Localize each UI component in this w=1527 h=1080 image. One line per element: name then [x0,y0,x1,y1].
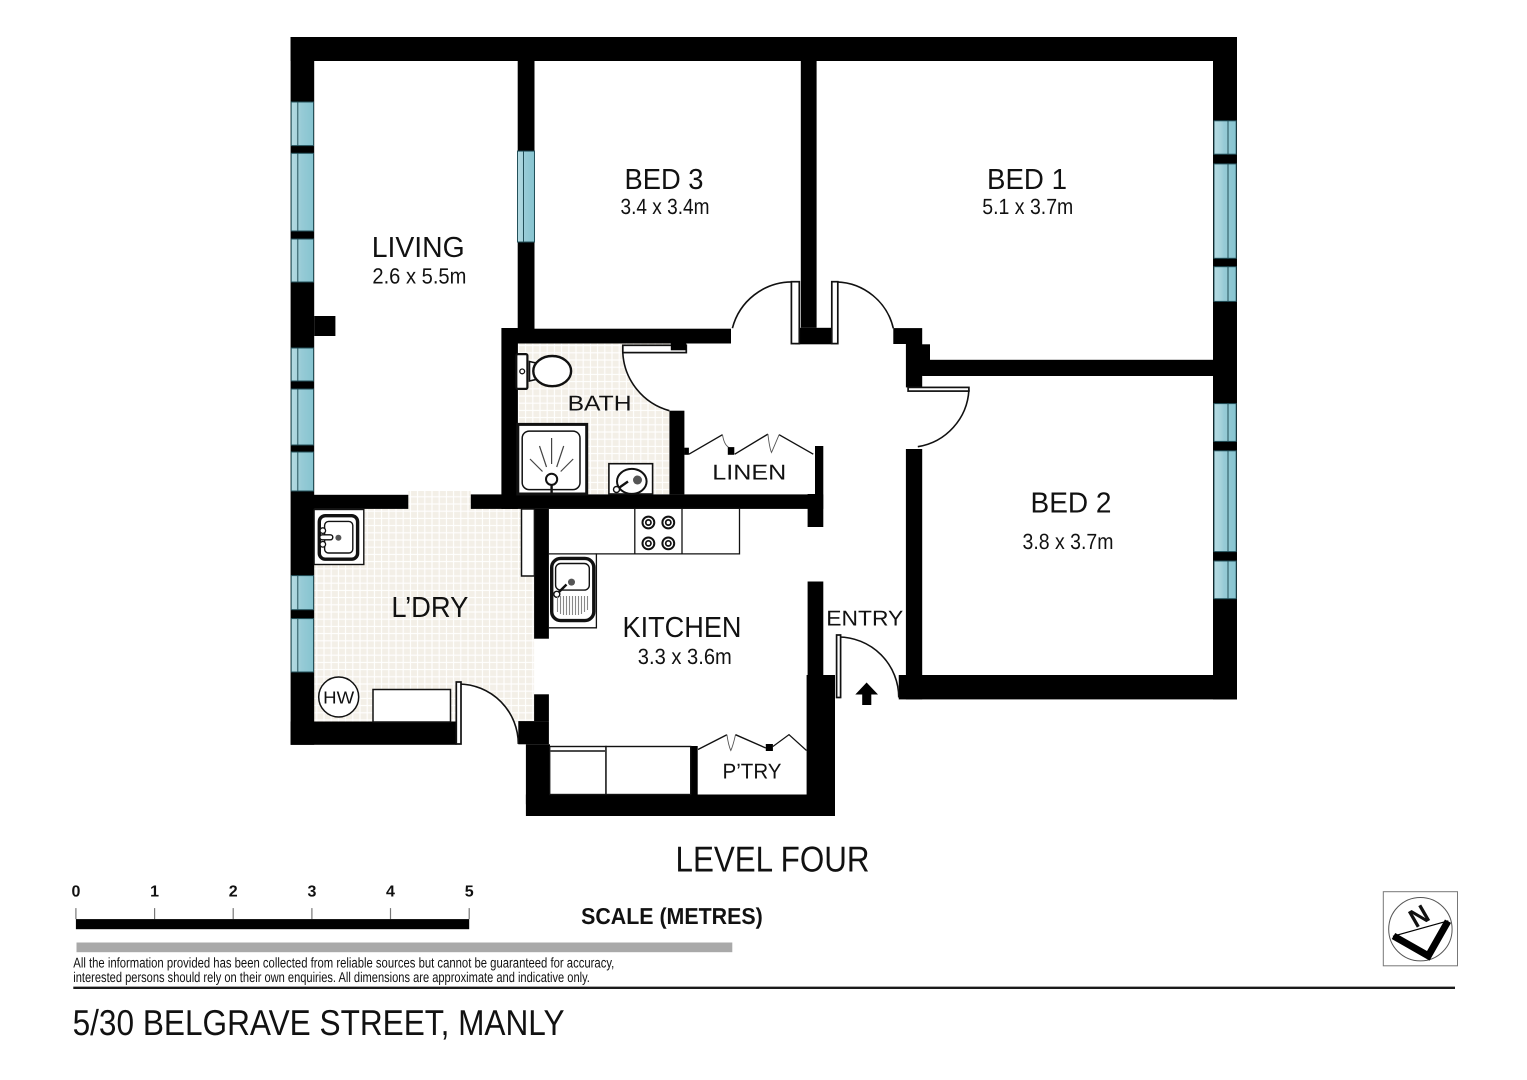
svg-text:L’DRY: L’DRY [391,592,468,624]
svg-text:KITCHEN: KITCHEN [623,612,742,644]
svg-text:0: 0 [71,884,80,901]
svg-text:1: 1 [150,884,159,901]
svg-text:BED 3: BED 3 [625,164,704,196]
svg-text:HW: HW [323,688,355,708]
svg-text:2.6 x 5.5m: 2.6 x 5.5m [372,263,466,288]
svg-text:LIVING: LIVING [372,232,465,264]
svg-text:4: 4 [386,884,395,901]
svg-text:BED 2: BED 2 [1031,488,1112,520]
svg-text:LEVEL FOUR: LEVEL FOUR [676,838,870,879]
svg-text:2: 2 [229,884,238,901]
svg-text:BATH: BATH [568,392,632,416]
svg-text:BED 1: BED 1 [987,164,1067,196]
svg-text:ENTRY: ENTRY [826,607,903,631]
svg-text:SCALE (METRES): SCALE (METRES) [581,903,763,929]
svg-text:5: 5 [465,884,474,901]
svg-text:LINEN: LINEN [712,461,786,485]
svg-text:3.3 x 3.6m: 3.3 x 3.6m [638,644,732,669]
svg-text:3: 3 [307,884,316,901]
svg-text:3.4 x 3.4m: 3.4 x 3.4m [621,194,710,219]
svg-text:3.8 x 3.7m: 3.8 x 3.7m [1023,529,1114,554]
svg-text:5/30 BELGRAVE STREET, MANLY: 5/30 BELGRAVE STREET, MANLY [73,1002,565,1043]
svg-text:interested persons should rely: interested persons should rely on their … [73,970,590,986]
svg-text:5.1 x 3.7m: 5.1 x 3.7m [982,194,1073,219]
svg-text:P’TRY: P’TRY [723,760,782,784]
